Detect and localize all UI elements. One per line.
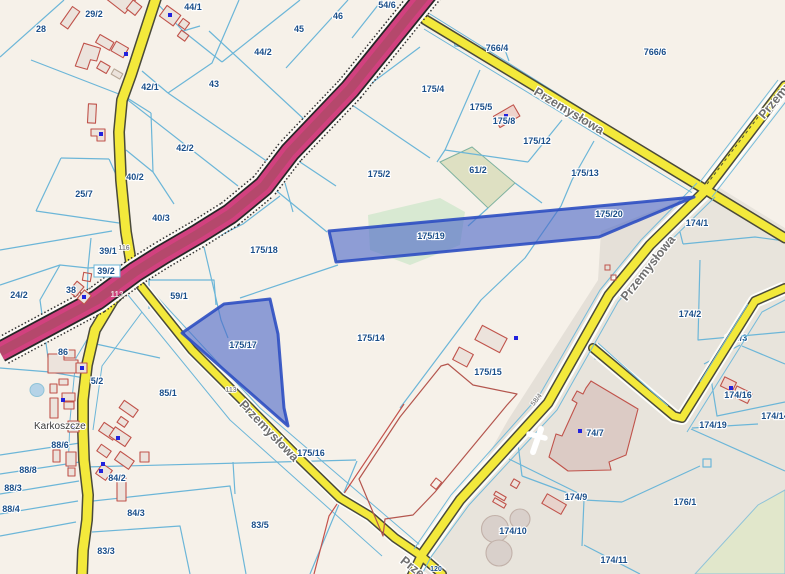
svg-text:176/1: 176/1 <box>674 497 697 507</box>
svg-text:175/18: 175/18 <box>250 245 278 255</box>
svg-text:25/7: 25/7 <box>75 189 93 199</box>
svg-text:39/1: 39/1 <box>99 246 117 256</box>
svg-text:84/2: 84/2 <box>108 473 126 483</box>
svg-text:83/5: 83/5 <box>251 520 269 530</box>
svg-text:46: 46 <box>333 11 343 21</box>
svg-text:39/2: 39/2 <box>97 266 115 276</box>
svg-text:174/19: 174/19 <box>699 420 727 430</box>
svg-text:120: 120 <box>430 566 442 573</box>
svg-text:175/16: 175/16 <box>297 448 325 458</box>
svg-text:59/1: 59/1 <box>170 291 188 301</box>
svg-text:175/8: 175/8 <box>493 116 516 126</box>
svg-text:40/2: 40/2 <box>126 172 144 182</box>
svg-text:766/4: 766/4 <box>486 43 509 53</box>
svg-text:83/3: 83/3 <box>97 546 115 556</box>
svg-text:175/19: 175/19 <box>417 231 445 241</box>
svg-text:42/1: 42/1 <box>141 82 159 92</box>
svg-text:174/16: 174/16 <box>724 390 752 400</box>
svg-text:175/17: 175/17 <box>229 340 257 350</box>
svg-text:175/14: 175/14 <box>357 333 385 343</box>
svg-text:175/15: 175/15 <box>474 367 502 377</box>
svg-text:29/2: 29/2 <box>85 9 103 19</box>
svg-text:Karkoszcze: Karkoszcze <box>34 421 86 432</box>
svg-text:174/9: 174/9 <box>565 492 588 502</box>
svg-text:175/2: 175/2 <box>368 169 391 179</box>
svg-text:88/3: 88/3 <box>4 483 22 493</box>
svg-text:40/3: 40/3 <box>152 213 170 223</box>
svg-text:175/13: 175/13 <box>571 168 599 178</box>
svg-text:61/2: 61/2 <box>469 165 487 175</box>
svg-text:766/6: 766/6 <box>644 47 667 57</box>
svg-text:175/5: 175/5 <box>470 102 493 112</box>
svg-text:174/10: 174/10 <box>499 526 527 536</box>
svg-text:88/4: 88/4 <box>2 504 20 514</box>
svg-text:54/6: 54/6 <box>378 0 396 10</box>
svg-text:175/4: 175/4 <box>422 84 445 94</box>
svg-text:174/2: 174/2 <box>679 309 702 319</box>
svg-text:113: 113 <box>111 290 124 299</box>
svg-text:86: 86 <box>58 347 68 357</box>
svg-text:43: 43 <box>209 79 219 89</box>
svg-text:175/20: 175/20 <box>595 209 623 219</box>
svg-text:74/7: 74/7 <box>586 428 604 438</box>
svg-text:84/3: 84/3 <box>127 508 145 518</box>
svg-text:28: 28 <box>36 24 46 34</box>
svg-text:175/12: 175/12 <box>523 136 551 146</box>
svg-text:113: 113 <box>225 387 236 394</box>
svg-text:88/8: 88/8 <box>19 465 37 475</box>
svg-text:44/1: 44/1 <box>184 2 202 12</box>
svg-text:174/11: 174/11 <box>600 555 627 565</box>
svg-text:44/2: 44/2 <box>254 47 272 57</box>
svg-text:42/2: 42/2 <box>176 143 194 153</box>
svg-text:174/1: 174/1 <box>686 218 709 228</box>
svg-text:38: 38 <box>66 285 76 295</box>
svg-text:5/2: 5/2 <box>91 376 104 386</box>
svg-text:24/2: 24/2 <box>10 290 28 300</box>
svg-text:116: 116 <box>118 245 129 252</box>
svg-text:88/6: 88/6 <box>51 440 69 450</box>
svg-text:45: 45 <box>294 24 304 34</box>
svg-text:85/1: 85/1 <box>159 388 177 398</box>
svg-text:174/14: 174/14 <box>761 411 785 421</box>
